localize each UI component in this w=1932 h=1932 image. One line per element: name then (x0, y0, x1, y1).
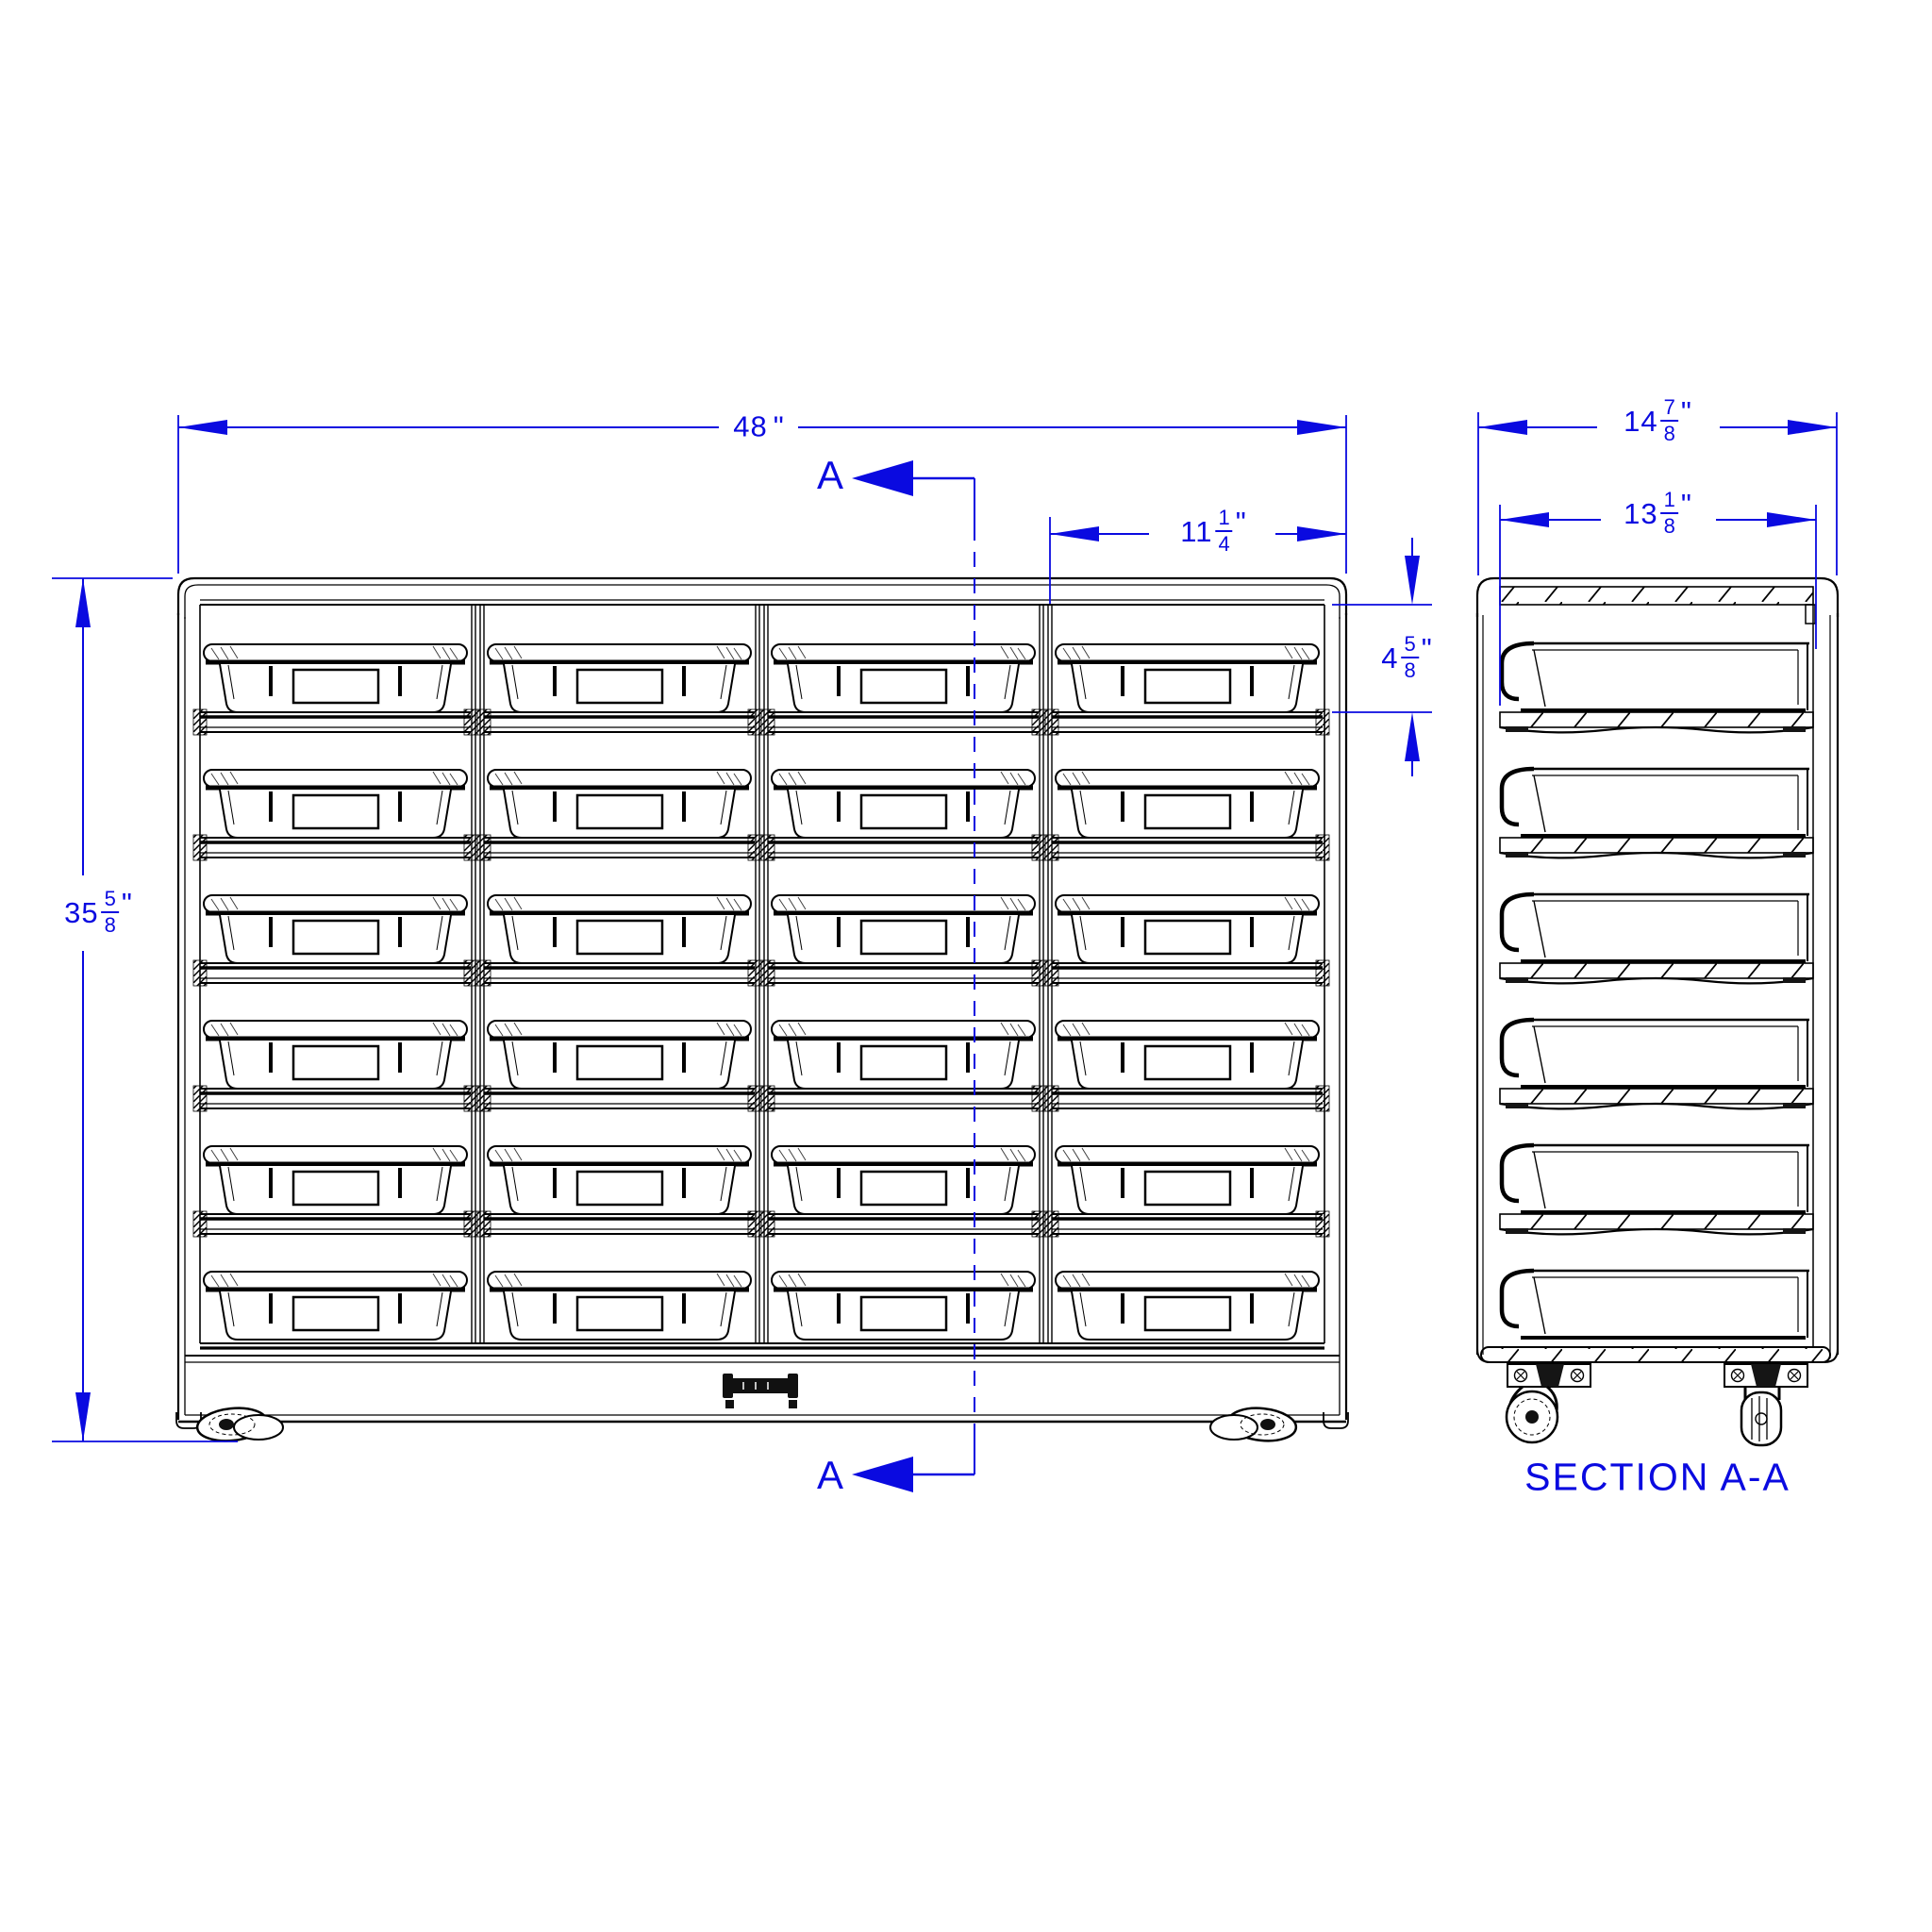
dim-unit: " (774, 412, 784, 441)
drawing-sheet: 48" 3558" 1114" 458" 1478" 1318" A A SEC… (0, 0, 1932, 1932)
dim-bin-opening-height: 458" (1381, 634, 1432, 681)
section-view-title: SECTION A-A (1524, 1458, 1790, 1497)
lock-icon (723, 1374, 798, 1408)
front-view (176, 578, 1348, 1444)
dim-overall-height: 3558" (64, 889, 132, 936)
section-marker-bottom-label: A (817, 1456, 843, 1495)
dim-value: 13 (1624, 499, 1657, 528)
dim-value: 11 (1180, 517, 1212, 546)
dim-overall-width: 48" (733, 412, 784, 441)
dim-value: 48 (733, 412, 767, 441)
dim-unit: " (1422, 634, 1432, 663)
section-marker-top-label: A (817, 456, 843, 495)
dim-bin-opening-width: 1114" (1180, 508, 1245, 555)
dim-value: 14 (1624, 407, 1657, 436)
section-base (1481, 1347, 1830, 1362)
caster-front-right (1210, 1405, 1298, 1443)
section-caster-left (1507, 1364, 1591, 1442)
dim-fraction: 58 (1401, 634, 1418, 681)
dim-value: 4 (1381, 643, 1398, 673)
dim-fraction: 18 (1661, 490, 1678, 537)
caster-front-left (195, 1405, 283, 1444)
section-arrow-top-icon (852, 460, 913, 496)
section-arrow-bottom-icon (852, 1457, 913, 1492)
dim-fraction: 78 (1661, 397, 1678, 444)
dim-unit: " (1236, 508, 1246, 537)
dim-fraction: 14 (1215, 508, 1232, 555)
technical-drawing-svg (0, 0, 1932, 1932)
section-caster-right (1724, 1364, 1807, 1445)
dim-unit: " (1681, 490, 1691, 519)
section-view (1477, 578, 1838, 1445)
dim-unit: " (1681, 397, 1691, 426)
dim-value: 35 (64, 898, 98, 927)
dim-overall-depth: 1478" (1624, 397, 1691, 444)
dim-tray-depth: 1318" (1624, 490, 1691, 537)
dim-fraction: 58 (102, 889, 119, 936)
dim-unit: " (122, 889, 132, 918)
